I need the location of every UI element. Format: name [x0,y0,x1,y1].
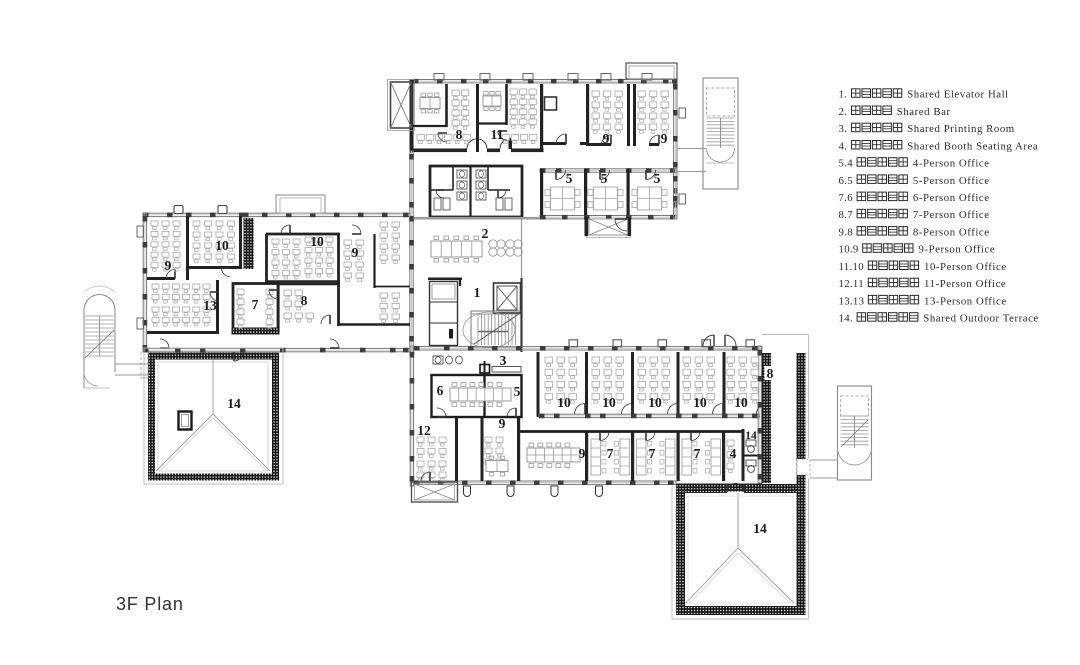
svg-text:10: 10 [648,395,662,410]
svg-text:9: 9 [603,131,610,146]
svg-text:8-Person Office: 8-Person Office [913,227,990,239]
svg-text:6.5: 6.5 [839,175,853,187]
svg-text:Shared Printing Room: Shared Printing Room [907,123,1015,135]
svg-text:9: 9 [661,131,668,146]
svg-text:10: 10 [693,395,707,410]
svg-text:2.: 2. [839,106,848,118]
svg-text:10: 10 [602,395,616,410]
svg-text:1: 1 [474,285,481,300]
svg-text:3F Plan: 3F Plan [116,594,184,614]
svg-text:7: 7 [694,446,701,461]
svg-text:7: 7 [649,446,656,461]
svg-text:5.4: 5.4 [839,158,854,170]
svg-text:6: 6 [437,383,444,398]
svg-text:11: 11 [491,127,504,142]
svg-text:7.6: 7.6 [839,192,854,204]
svg-text:9: 9 [352,245,359,260]
svg-text:8: 8 [456,127,463,142]
svg-text:13.13: 13.13 [839,295,865,307]
svg-text:4.: 4. [839,140,848,152]
svg-text:9: 9 [579,446,586,461]
svg-text:5: 5 [566,171,573,186]
svg-text:14: 14 [227,396,241,411]
svg-text:13-Person Office: 13-Person Office [924,295,1007,307]
svg-text:12: 12 [417,423,431,438]
svg-text:9.8: 9.8 [839,227,853,239]
svg-text:8: 8 [301,293,308,308]
svg-text:10: 10 [310,234,324,249]
svg-text:10: 10 [734,395,748,410]
svg-text:5-Person Office: 5-Person Office [913,175,990,187]
svg-text:9: 9 [499,416,506,431]
svg-text:10-Person Office: 10-Person Office [924,261,1007,273]
svg-text:12.11: 12.11 [839,278,864,290]
svg-text:Shared Outdoor Terrace: Shared Outdoor Terrace [923,313,1038,325]
svg-text:8: 8 [767,366,774,381]
svg-text:5: 5 [654,171,661,186]
svg-text:5: 5 [514,384,521,399]
svg-text:9-Person Office: 9-Person Office [919,244,996,256]
svg-text:3.: 3. [839,123,848,135]
svg-text:4-Person Office: 4-Person Office [913,158,990,170]
svg-text:4: 4 [730,446,737,461]
svg-text:8.7: 8.7 [839,209,854,221]
svg-text:11.10: 11.10 [839,261,864,273]
svg-text:Shared Booth Seating Area: Shared Booth Seating Area [907,140,1038,152]
svg-text:14: 14 [753,521,767,536]
svg-text:6-Person Office: 6-Person Office [913,192,990,204]
svg-text:7-Person Office: 7-Person Office [913,209,990,221]
svg-text:10: 10 [215,238,229,253]
svg-text:2: 2 [482,226,489,241]
svg-text:10: 10 [557,395,571,410]
svg-text:14.: 14. [839,313,853,325]
svg-text:Shared Bar: Shared Bar [897,106,951,118]
svg-text:14: 14 [745,430,757,442]
svg-text:3: 3 [500,353,507,368]
svg-text:11-Person Office: 11-Person Office [924,278,1006,290]
svg-text:10.9: 10.9 [839,244,859,256]
svg-text:7: 7 [607,446,614,461]
svg-text:9: 9 [165,258,172,273]
svg-text:Shared Elevator Hall: Shared Elevator Hall [907,89,1009,101]
svg-text:1.: 1. [839,89,848,101]
svg-text:5: 5 [601,171,608,186]
svg-text:7: 7 [252,297,259,312]
